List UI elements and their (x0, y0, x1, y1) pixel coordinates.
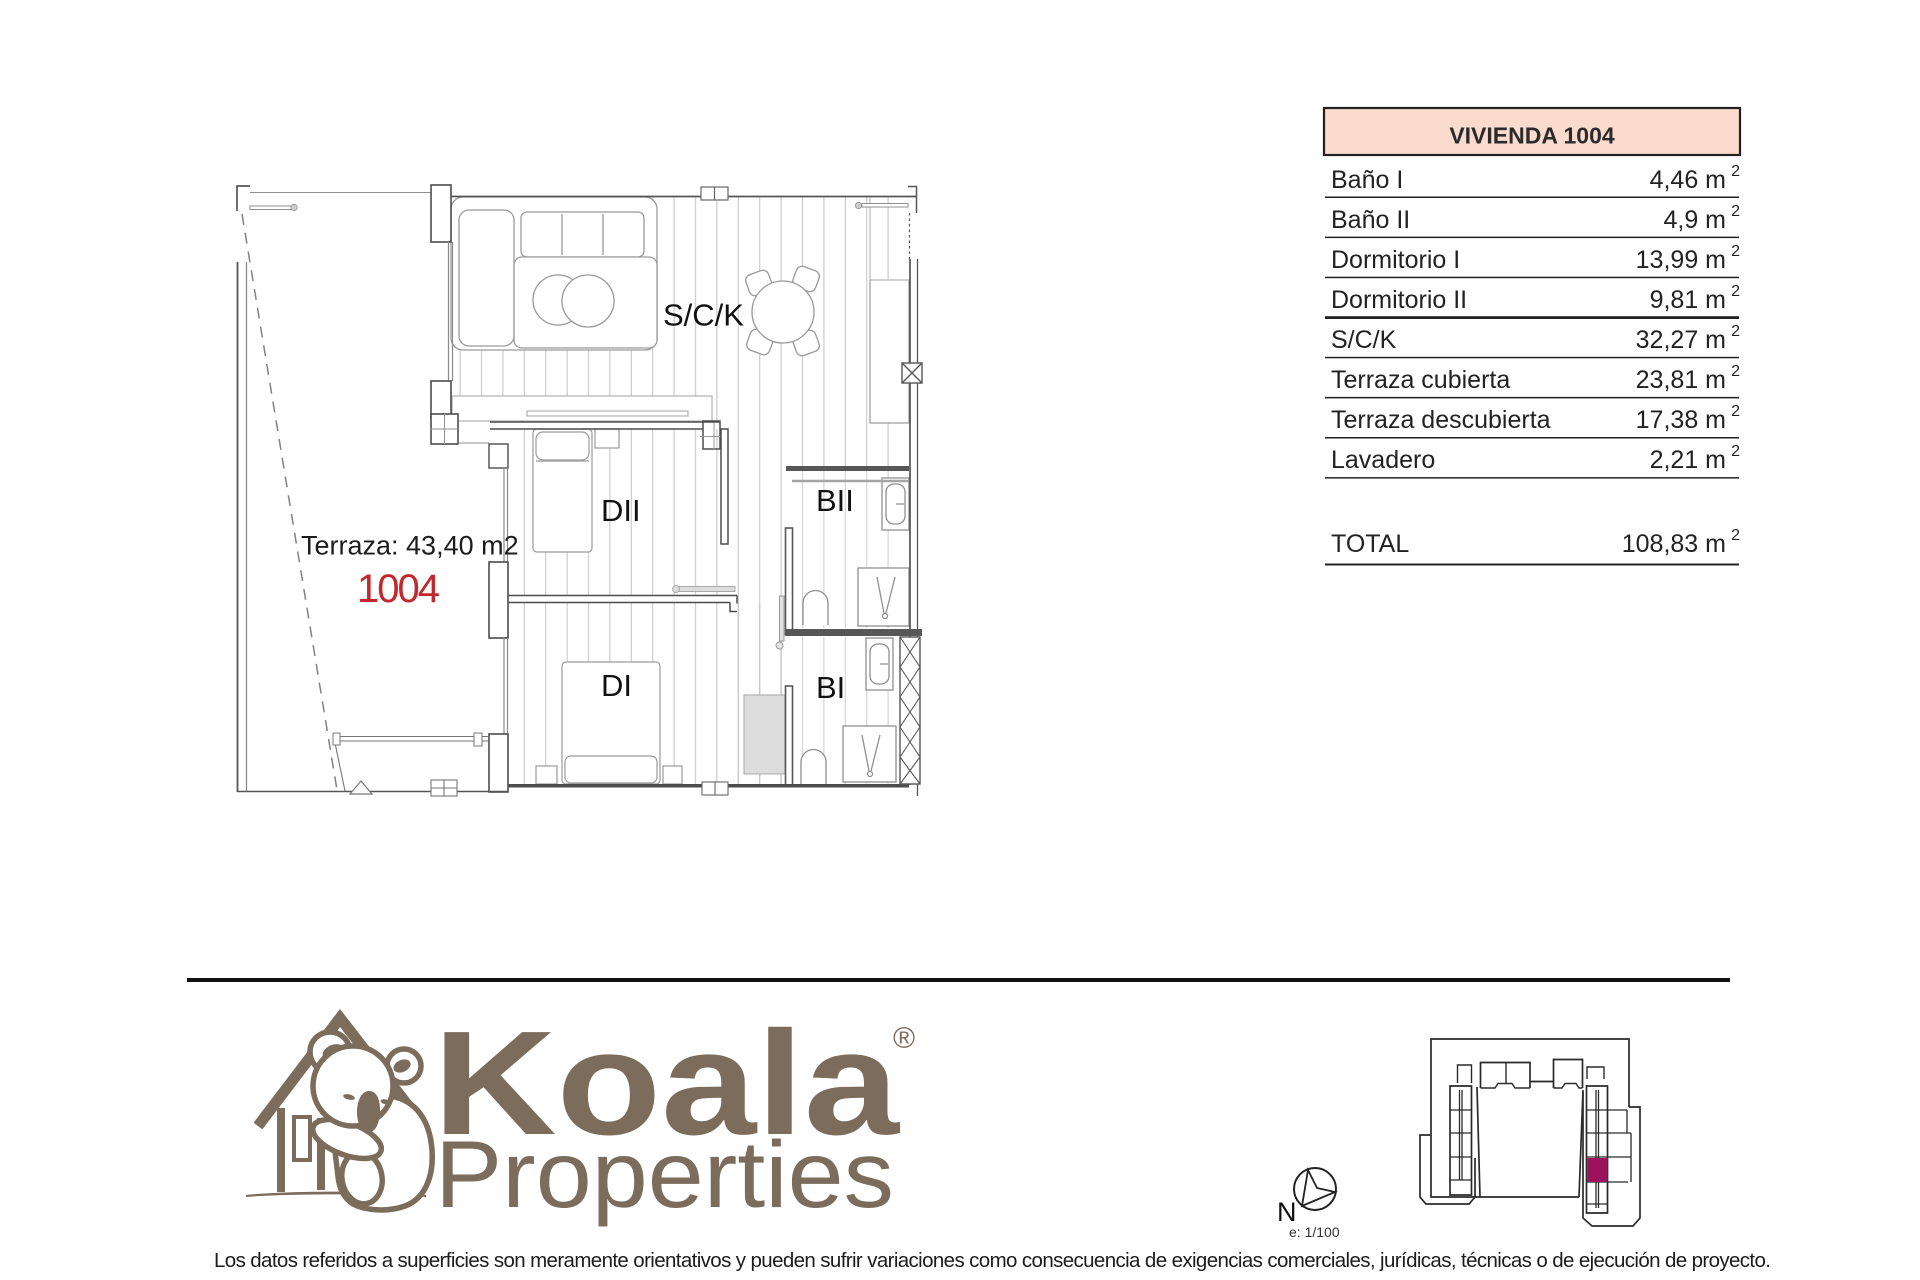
svg-text:2: 2 (1731, 443, 1740, 460)
svg-text:BI: BI (816, 670, 845, 705)
svg-text:Baño I: Baño I (1331, 166, 1403, 194)
svg-text:DI: DI (601, 668, 632, 703)
svg-text:2: 2 (1731, 243, 1740, 260)
svg-text:23,81 m: 23,81 m (1636, 366, 1726, 394)
svg-text:VIVIENDA 1004: VIVIENDA 1004 (1449, 123, 1615, 149)
svg-text:32,27 m: 32,27 m (1636, 326, 1726, 354)
svg-text:Terraza cubierta: Terraza cubierta (1331, 366, 1510, 394)
svg-text:S/C/K: S/C/K (663, 298, 744, 333)
svg-text:Terraza descubierta: Terraza descubierta (1331, 406, 1551, 434)
svg-text:108,83 m: 108,83 m (1622, 530, 1726, 558)
svg-text:1004: 1004 (357, 567, 440, 611)
svg-text:Dormitorio II: Dormitorio II (1331, 286, 1467, 314)
svg-text:9,81 m: 9,81 m (1650, 286, 1726, 314)
svg-text:2: 2 (1731, 323, 1740, 340)
svg-text:DII: DII (601, 493, 641, 528)
svg-text:2: 2 (1731, 163, 1740, 180)
svg-text:Dormitorio I: Dormitorio I (1331, 246, 1460, 274)
svg-text:17,38 m: 17,38 m (1636, 406, 1726, 434)
svg-text:2,21 m: 2,21 m (1650, 446, 1726, 474)
svg-text:TOTAL: TOTAL (1331, 530, 1409, 558)
svg-text:4,46 m: 4,46 m (1650, 166, 1726, 194)
svg-text:2: 2 (1731, 363, 1740, 380)
svg-text:BII: BII (816, 483, 854, 518)
svg-text:Properties: Properties (435, 1122, 894, 1228)
svg-text:S/C/K: S/C/K (1331, 326, 1397, 354)
svg-text:2: 2 (1731, 527, 1740, 544)
svg-text:Lavadero: Lavadero (1331, 446, 1435, 474)
svg-text:Terraza: 43,40 m2: Terraza: 43,40 m2 (301, 531, 519, 561)
svg-text:Los datos referidos a superfic: Los datos referidos a superficies son me… (214, 1249, 1771, 1272)
svg-text:13,99 m: 13,99 m (1636, 246, 1726, 274)
svg-text:Baño II: Baño II (1331, 206, 1410, 234)
svg-text:2: 2 (1731, 403, 1740, 420)
svg-text:N: N (1277, 1197, 1297, 1227)
svg-text:4,9 m: 4,9 m (1663, 206, 1726, 234)
svg-text:e: 1/100: e: 1/100 (1289, 1224, 1340, 1240)
svg-text:2: 2 (1731, 283, 1740, 300)
svg-text:2: 2 (1731, 203, 1740, 220)
svg-text:®: ® (893, 1022, 915, 1055)
